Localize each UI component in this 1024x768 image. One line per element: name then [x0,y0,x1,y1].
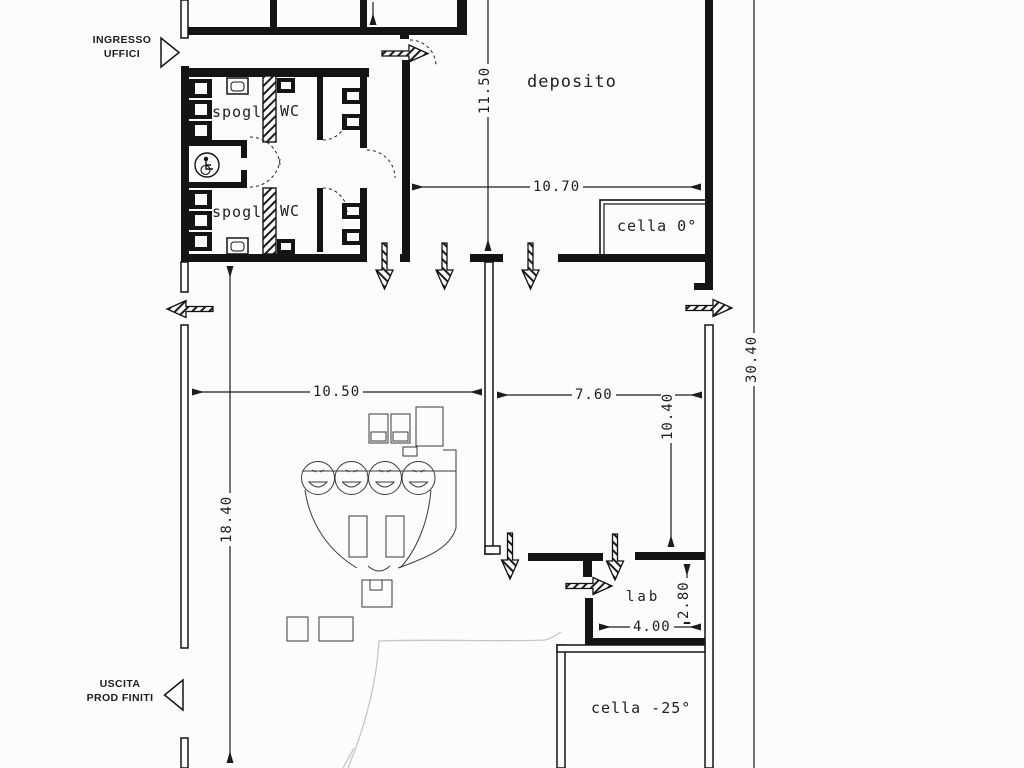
room-label-spogliatoio-top: spogl [212,105,262,120]
door-markers [161,38,183,710]
room-label-lab: lab [626,590,660,604]
mixer-kettles [302,462,436,495]
door-triangle-icon [161,38,179,67]
dimension-10-40: 10.40 [661,390,675,443]
pencil-sketch-lines [343,632,561,768]
equipment-drawing [287,407,456,641]
flow-arrows [167,45,732,595]
dimension-10-50: 10.50 [310,385,363,399]
room-label-deposito: deposito [527,74,617,91]
ingresso-line2: UFFICI [84,48,160,62]
room-label-spogliatoio-bottom: spogl [212,205,262,220]
direction-arrow-down-icon [607,534,624,580]
room-label-wc-bottom: WC [280,204,300,219]
uscita-line1: USCITA [78,678,162,692]
room-label-cella-freezer: cella -25° [591,701,691,716]
dimension-11-50: 11.50 [478,64,492,117]
room-label-wc-top: WC [280,104,300,119]
room-label-cella-zero: cella 0° [617,219,697,234]
floorplan-linework [0,0,1024,768]
direction-arrow-left-icon [167,301,213,318]
walls-solid [181,0,713,646]
direction-arrow-right-icon [382,45,428,62]
dimension-4-00: 4.00 [630,620,674,634]
door-triangle-icon [165,680,184,710]
exit-label-uscita: USCITA PROD FINITI [78,678,162,705]
wheelchair-accessible-icon [195,153,219,177]
dimension-30-40: 30.40 [745,333,759,386]
dimension-7-60: 7.60 [572,388,616,402]
ingresso-line1: INGRESSO [84,34,160,48]
direction-arrow-down-icon [436,243,453,289]
dimension-2-80: 2.80 [677,578,691,622]
hatched-partition-walls [263,76,276,254]
floor-plan-canvas: INGRESSO UFFICI USCITA PROD FINITI depos… [0,0,1024,768]
direction-arrow-down-icon [376,243,393,289]
direction-arrow-right-icon [566,578,612,595]
entrance-label-ingresso: INGRESSO UFFICI [84,34,160,61]
dimension-10-70: 10.70 [530,180,583,194]
direction-arrow-down-icon [522,243,539,289]
direction-arrow-down-icon [502,533,519,579]
uscita-line2: PROD FINITI [78,692,162,706]
direction-arrow-right-icon [686,300,732,317]
dimension-18-40: 18.40 [220,493,234,546]
